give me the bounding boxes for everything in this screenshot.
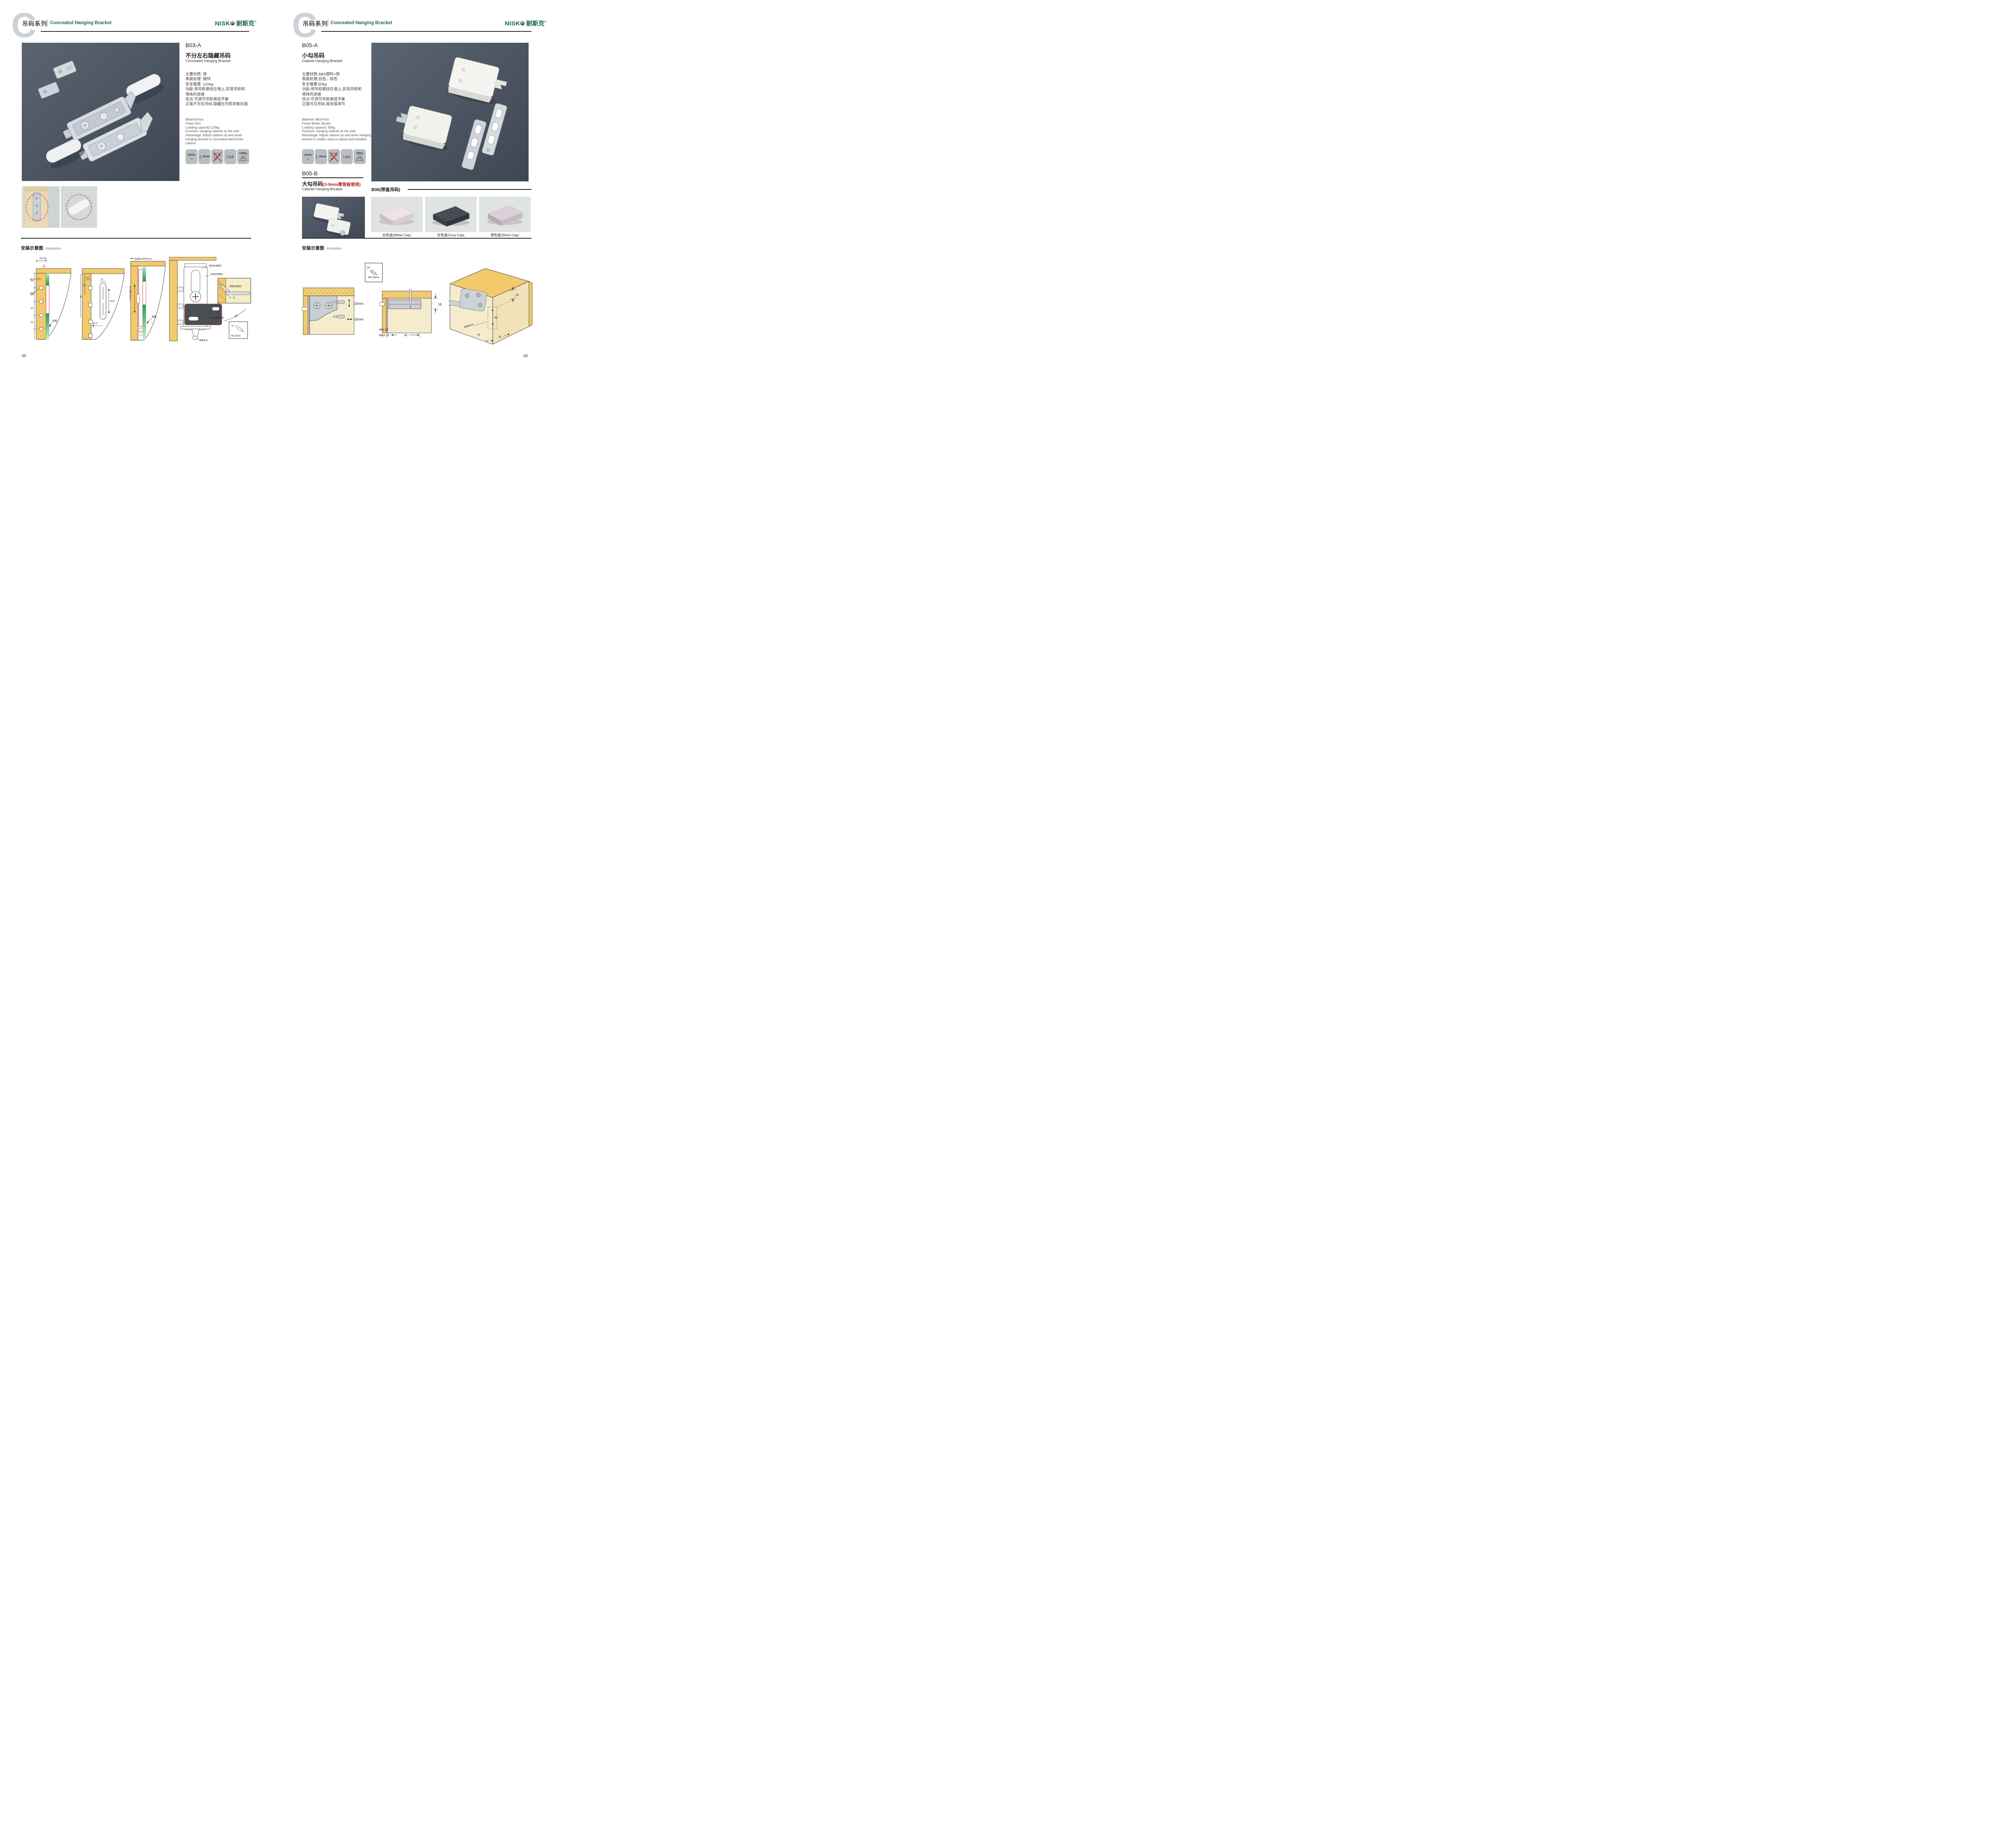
label-inset-screw: 安装自攻螺丝 (229, 285, 242, 288)
catalog-spread: { "header": {"watermark":"C","series_cn"… (0, 0, 541, 369)
page-left: C 吊码系列 Concealed Hanging Bracket NISKO耐斯… (0, 0, 271, 369)
product-code: B05-A (302, 42, 318, 48)
silver-cap-image (479, 197, 531, 232)
dim-17: 17 (485, 340, 489, 343)
label-locked-state: 锁紧状态 (199, 339, 208, 342)
page-right: C 吊码系列 Concealed Hanging Bracket NISKO耐斯… (271, 0, 541, 369)
feature-icons-row: 15mm↔ ↕10mm LGA 60Kg (302, 149, 367, 164)
no-drill-badge (211, 149, 223, 164)
lga-badge: LGA (224, 149, 236, 164)
product-title-en-b05b: Cabinet Hanging Brcaket (302, 187, 342, 191)
horizontal-arrow-icon: ↔ (190, 157, 194, 160)
installation-diagram-r3: 16 42 RMAX4 16 17 32 (448, 265, 534, 346)
section-rule (302, 238, 531, 239)
white-cap-image (371, 197, 423, 232)
brand-wordmark: NISKO (505, 20, 525, 27)
width-adjust-badge: 15mm↔ (302, 149, 314, 164)
vertical-arrow-icon: ↕ (199, 154, 202, 160)
dim-15mm: 15mm (354, 317, 364, 321)
load-capacity-badge: 60Kg (354, 149, 366, 164)
header-rule (41, 31, 249, 32)
width-adjust-badge: 10mm↔ (185, 149, 198, 164)
label-even-spacing: 均布 (30, 292, 35, 295)
label-back-panel: 背板 (152, 315, 156, 318)
series-divider (47, 19, 48, 26)
dim-32c: 32 (31, 321, 33, 324)
no-drill-icon (212, 151, 222, 162)
brand-logo: NISKO耐斯克® (215, 19, 256, 27)
registered-mark-icon: ® (254, 21, 256, 24)
section-rule (21, 238, 251, 239)
dim-16-18: 16-18 (40, 257, 46, 260)
product-title-cn: 不分左右隐藏吊码 (185, 52, 231, 60)
product-title-en: Cabinet Hanging Bracket (302, 59, 342, 63)
label-up-down-adjust: 上下调节10mm (129, 285, 131, 301)
series-title-cn: 吊码系列 (22, 19, 47, 28)
brand-wordmark: NISKO (215, 20, 235, 27)
dim-5: 5 (44, 264, 45, 267)
cap-label-silver: 银色盖(Silver Cap) (479, 233, 531, 237)
product-code: B03-A (185, 42, 201, 48)
label-countersunk-holes: Φ3.0-4个沉孔 (30, 278, 41, 281)
page-number: 66 (523, 354, 528, 358)
dim-12-5: 12.5 (86, 277, 90, 279)
horizontal-arrow-icon: ↔ (306, 157, 310, 160)
b05b-rule (302, 177, 363, 178)
dim-max23: MAX.23 (379, 334, 389, 337)
dim-42-5: 42.5 (110, 300, 115, 303)
installation-diagram-4: 安装自攻螺丝 安装自攻螺丝 专用挂片 安装自攻螺丝 锁紧状态 安装自攻螺丝 45… (169, 256, 252, 344)
registered-mark-icon: ® (544, 21, 546, 24)
load-capacity-badge: 120Kg (237, 149, 249, 164)
height-adjust-badge: ↕10mm (315, 149, 327, 164)
cap-photo-white (371, 197, 423, 232)
detail-photo-cover (61, 186, 97, 228)
no-drill-icon (329, 151, 339, 162)
dim-60: 60 (80, 296, 83, 298)
lga-badge: LGA (341, 149, 353, 164)
height-adjust-badge: ↕10mm (198, 149, 210, 164)
dim-10mm: 10mm (354, 302, 364, 306)
page-number: 65 (22, 354, 26, 358)
cap-photo-silver (479, 197, 531, 232)
installation-diagram-3: 前后最大调节10mm 上下调节10mm 背板 (129, 256, 168, 344)
product-title-b05b: 大勾吊码(3-9mm厚背板使用) (302, 180, 423, 188)
screw-spec-box: 2x Φ4×30mm (365, 263, 383, 282)
series-title-en: Concealed Hanging Bracket (50, 21, 112, 25)
screw-icon (369, 270, 378, 276)
label-screw-3: 安装自攻螺丝 (211, 316, 224, 319)
dim-16-top: 16 (515, 293, 519, 297)
product-code-b05b: B05-B (302, 170, 318, 177)
feature-icons-row: 10mm↔ ↕10mm LGA 120Kg (185, 149, 250, 164)
no-drill-badge (328, 149, 340, 164)
screw-spec-box: 1x Φ3.5mm (229, 322, 248, 339)
b06-label: B06(带盖吊码) (371, 186, 400, 193)
product-photo-b05b (302, 197, 365, 239)
specs-cn: 主要材质: 铁 表面处理: 镀锌 安全载重: 120kg 功能:将吊柜悬挂在墙上… (185, 72, 252, 107)
header-rule (321, 31, 531, 32)
installation-diagram-2: 60 35 12.5 12 42.5 20.5 (80, 256, 126, 344)
product-photo-b03a (22, 43, 179, 181)
series-divider (328, 19, 328, 26)
dim-58: 58 (404, 334, 407, 337)
dim-32: 32 (498, 336, 502, 339)
brand-logo: NISKO耐斯克® (505, 19, 546, 27)
detail-photo-mounted (22, 186, 60, 228)
specs-en: Material: ABS+Iron Finish:White, Brown L… (302, 118, 373, 141)
brand-cn: 耐斯克 (526, 20, 544, 27)
installation-diagram-r1: 10mm 15mm (302, 282, 368, 335)
label-front-back-adjust: 前后最大调节10mm (134, 258, 152, 260)
dim-12: 12 (101, 279, 103, 281)
load-weight-icon (238, 155, 248, 161)
dim-min10: MIN.10 (379, 329, 388, 331)
dim-35: 35 (83, 285, 86, 287)
dim-18: 18 (438, 303, 442, 306)
gray-cap-image (425, 197, 477, 232)
series-title-en: Concealed Hanging Bracket (331, 21, 392, 25)
dim-42: 42 (494, 316, 498, 319)
cap-photo-gray (425, 197, 477, 232)
load-weight-icon (355, 155, 364, 161)
label-1x: 1x (231, 325, 234, 327)
brand-cn: 耐斯克 (236, 20, 254, 27)
specs-cn: 主要材质:ABS塑料+铁 表面处理:白色、棕色 安全载重:60kg 功能:将吊柜… (302, 72, 369, 107)
label-screw-1: 安装自攻螺丝 (209, 264, 221, 267)
b06-rule (408, 189, 531, 190)
label-back-panel: 背板 (52, 319, 57, 322)
vertical-arrow-icon: ↕ (315, 154, 318, 160)
product-title-en: Concealed Hanging Bracket (185, 59, 231, 63)
installation-title: 安装示意图Installation (21, 244, 61, 252)
label-dia-3-5: Φ3.5mm (231, 335, 241, 337)
dim-32b: 32 (31, 308, 33, 310)
installation-title: 安装示意图Installation (302, 244, 342, 252)
specs-en: Material:Iron Finish:Zinc Loading capaci… (185, 118, 254, 146)
product-title-cn: 小勾吊码 (302, 52, 325, 60)
cap-label-gray: 灰色盖(Gray Cap) (425, 233, 477, 237)
series-title-cn: 吊码系列 (303, 19, 328, 28)
cap-label-white: 白色盖(White Cap) (371, 233, 423, 237)
product-photo-b05a (371, 43, 529, 181)
label-45deg: 45° (235, 315, 239, 318)
installation-diagram-1: 16-18 5 35 32 32 32 Φ3.0-4个沉孔 均布 背板 (30, 256, 73, 344)
installation-diagram-r2: 18 MIN.10 MAX.23 58 (379, 287, 444, 340)
dim-20-5: 20.5 (93, 322, 98, 325)
label-screw-2: 安装自攻螺丝 (210, 272, 223, 276)
